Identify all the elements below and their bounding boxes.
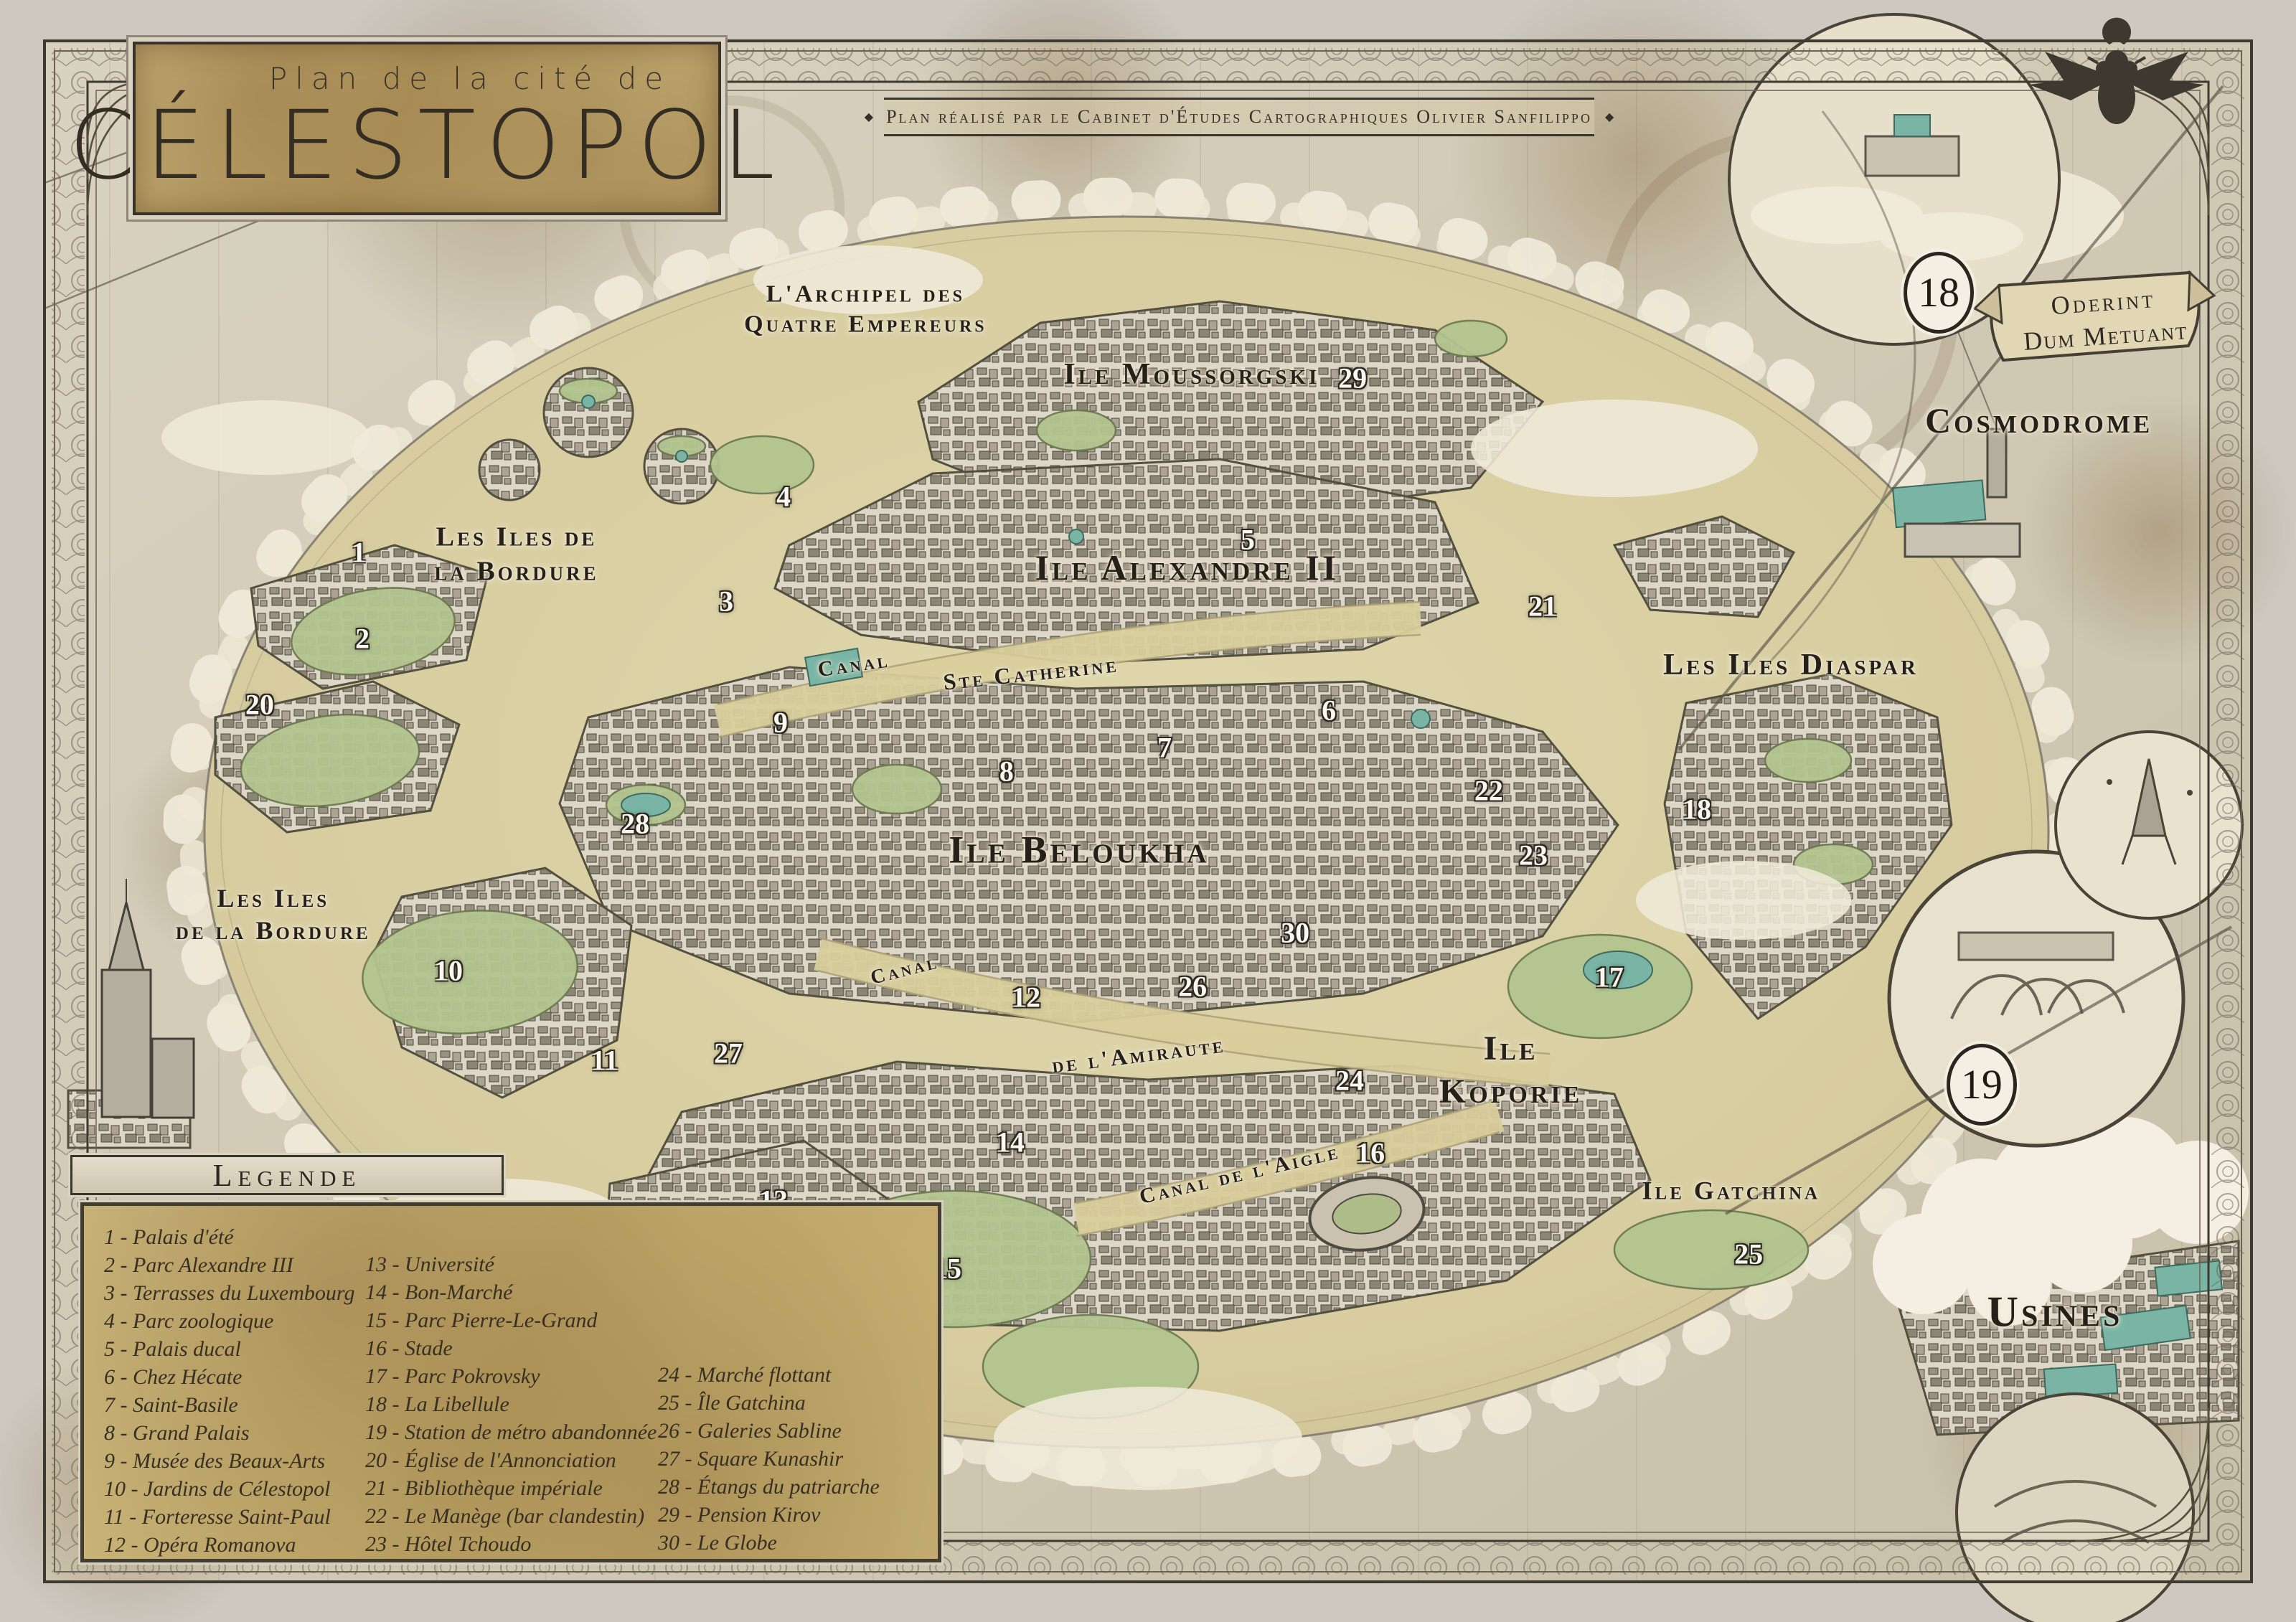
legend-col-2: 13 - Université14 - Bon-Marché15 - Parc … (365, 1223, 657, 1558)
legend-item: 13 - Université (365, 1250, 657, 1278)
legend-item: 1 - Palais d'été (104, 1223, 354, 1251)
map-marker-12: 12 (1012, 981, 1040, 1014)
map-page: Plan de la cité de CÉLESTOPOL ◆ Plan réa… (0, 0, 2296, 1622)
credit-text: Plan réalisé par le Cabinet d'Études Car… (886, 106, 1592, 128)
legend-item: 18 - La Libellule (365, 1390, 657, 1418)
map-marker-16: 16 (1356, 1136, 1385, 1169)
legend-item: 30 - Le Globe (658, 1529, 880, 1557)
legend-item: 29 - Pension Kirov (658, 1501, 880, 1529)
map-marker-23: 23 (1519, 838, 1548, 872)
legend-item: 8 - Grand Palais (104, 1419, 354, 1447)
legend-item: 27 - Square Kunashir (658, 1445, 880, 1473)
region-label-canal-south: Canal (868, 949, 941, 990)
map-marker-28: 28 (621, 806, 649, 840)
legend-item: 6 - Chez Hécate (104, 1363, 354, 1391)
region-label-beloukha: Ile Beloukha (949, 826, 1209, 874)
legend-item: 21 - Bibliothèque impériale (365, 1474, 657, 1502)
map-marker-3: 3 (719, 584, 733, 618)
region-label-archipel: L'Archipel des Quatre Empereurs (744, 279, 987, 340)
map-marker-10: 10 (434, 953, 463, 987)
legend-item: 24 - Marché flottant (658, 1361, 880, 1389)
legend-item: 2 - Parc Alexandre III (104, 1251, 354, 1279)
map-marker-20: 20 (245, 687, 274, 721)
legend-item: 25 - Île Gatchina (658, 1389, 880, 1417)
region-label-cosmodrome: Cosmodrome (1925, 397, 2152, 443)
region-label-diaspar: Les Iles Diaspar (1663, 646, 1919, 684)
map-marker-5: 5 (1241, 523, 1255, 557)
legend-item: 16 - Stade (365, 1334, 657, 1362)
region-label-usines: Usines (1987, 1286, 2123, 1339)
region-label-amiraute: de l'Amiraute (1050, 1029, 1228, 1079)
legend-item: 17 - Parc Pokrovsky (365, 1362, 657, 1390)
map-marker-6: 6 (1322, 694, 1336, 727)
legend-item: 14 - Bon-Marché (365, 1278, 657, 1306)
map-marker-25: 25 (1734, 1237, 1763, 1270)
map-marker-11: 11 (591, 1044, 618, 1078)
map-marker-8: 8 (999, 755, 1014, 788)
map-marker-22: 22 (1474, 774, 1503, 808)
legend-col-3: 24 - Marché flottant25 - Île Gatchina26 … (658, 1223, 880, 1557)
legend-item: 23 - Hôtel Tchoudo (365, 1530, 657, 1558)
map-marker-29: 29 (1338, 362, 1367, 395)
region-label-canal-west: Canal (817, 646, 892, 683)
map-marker-2: 2 (355, 621, 370, 655)
legend-item: 26 - Galeries Sabline (658, 1417, 880, 1445)
region-label-canal-aigle: Canal de l'Aigle (1137, 1138, 1343, 1211)
circled-marker-18: 18 (1904, 252, 1974, 334)
map-marker-18: 18 (1683, 793, 1711, 826)
ornament-icon: ◆ (1605, 110, 1614, 124)
map-marker-4: 4 (776, 480, 791, 514)
legend-item: 22 - Le Manège (bar clandestin) (365, 1502, 657, 1530)
ornament-icon: ◆ (865, 110, 873, 124)
map-marker-7: 7 (1157, 730, 1172, 764)
circled-marker-19: 19 (1947, 1044, 2017, 1126)
legend-item: 19 - Station de métro abandonnée (365, 1418, 657, 1446)
region-label-koporie: Ile Koporie (1439, 1027, 1582, 1113)
legend-item: 10 - Jardins de Célestopol (104, 1475, 354, 1503)
region-label-bordure-north: Les Iles de la Bordure (434, 521, 598, 589)
legend-header: Legende (70, 1155, 504, 1195)
legend-item: 12 - Opéra Romanova (104, 1531, 354, 1559)
map-marker-14: 14 (996, 1125, 1025, 1159)
legend-col-1: 1 - Palais d'été2 - Parc Alexandre III3 … (104, 1223, 354, 1559)
map-marker-1: 1 (352, 536, 366, 570)
map-marker-17: 17 (1595, 961, 1624, 994)
legend-item: 7 - Saint-Basile (104, 1391, 354, 1419)
legend-item: 15 - Parc Pierre-Le-Grand (365, 1306, 657, 1334)
map-marker-30: 30 (1281, 916, 1309, 950)
region-label-ste-catherine: Ste Catherine (941, 650, 1120, 697)
region-label-gatchina: Ile Gatchina (1642, 1174, 1821, 1207)
legend-item: 11 - Forteresse Saint-Paul (104, 1503, 354, 1531)
region-label-bordure-south: Les Iles de la Bordure (176, 882, 371, 947)
region-label-moussorgski: Ile Moussorgski (1063, 356, 1319, 394)
legend-item: 28 - Étangs du patriarche (658, 1473, 880, 1501)
legend-item: 3 - Terrasses du Luxembourg (104, 1279, 354, 1307)
credit-banner: ◆ Plan réalisé par le Cabinet d'Études C… (884, 98, 1594, 136)
label-overlay: Plan de la cité de CÉLESTOPOL ◆ Plan réa… (0, 0, 2296, 1622)
legend-item: 9 - Musée des Beaux-Arts (104, 1447, 354, 1475)
motto-banner: Oderint Dum Metuant (1998, 278, 2211, 360)
region-label-alexandre: Ile Alexandre II (1035, 545, 1339, 590)
legend-item: 4 - Parc zoologique (104, 1307, 354, 1335)
title-cartouche: Plan de la cité de CÉLESTOPOL (133, 42, 721, 215)
legend-item: 20 - Église de l'Annonciation (365, 1446, 657, 1474)
map-marker-24: 24 (1335, 1063, 1364, 1097)
map-marker-27: 27 (714, 1037, 743, 1070)
legend-box: 1 - Palais d'été2 - Parc Alexandre III3 … (80, 1202, 941, 1562)
legend-item: 5 - Palais ducal (104, 1335, 354, 1363)
map-marker-21: 21 (1528, 589, 1557, 623)
map-marker-26: 26 (1178, 969, 1207, 1003)
map-marker-9: 9 (773, 706, 788, 740)
page-title: CÉLESTOPOL (69, 96, 785, 196)
